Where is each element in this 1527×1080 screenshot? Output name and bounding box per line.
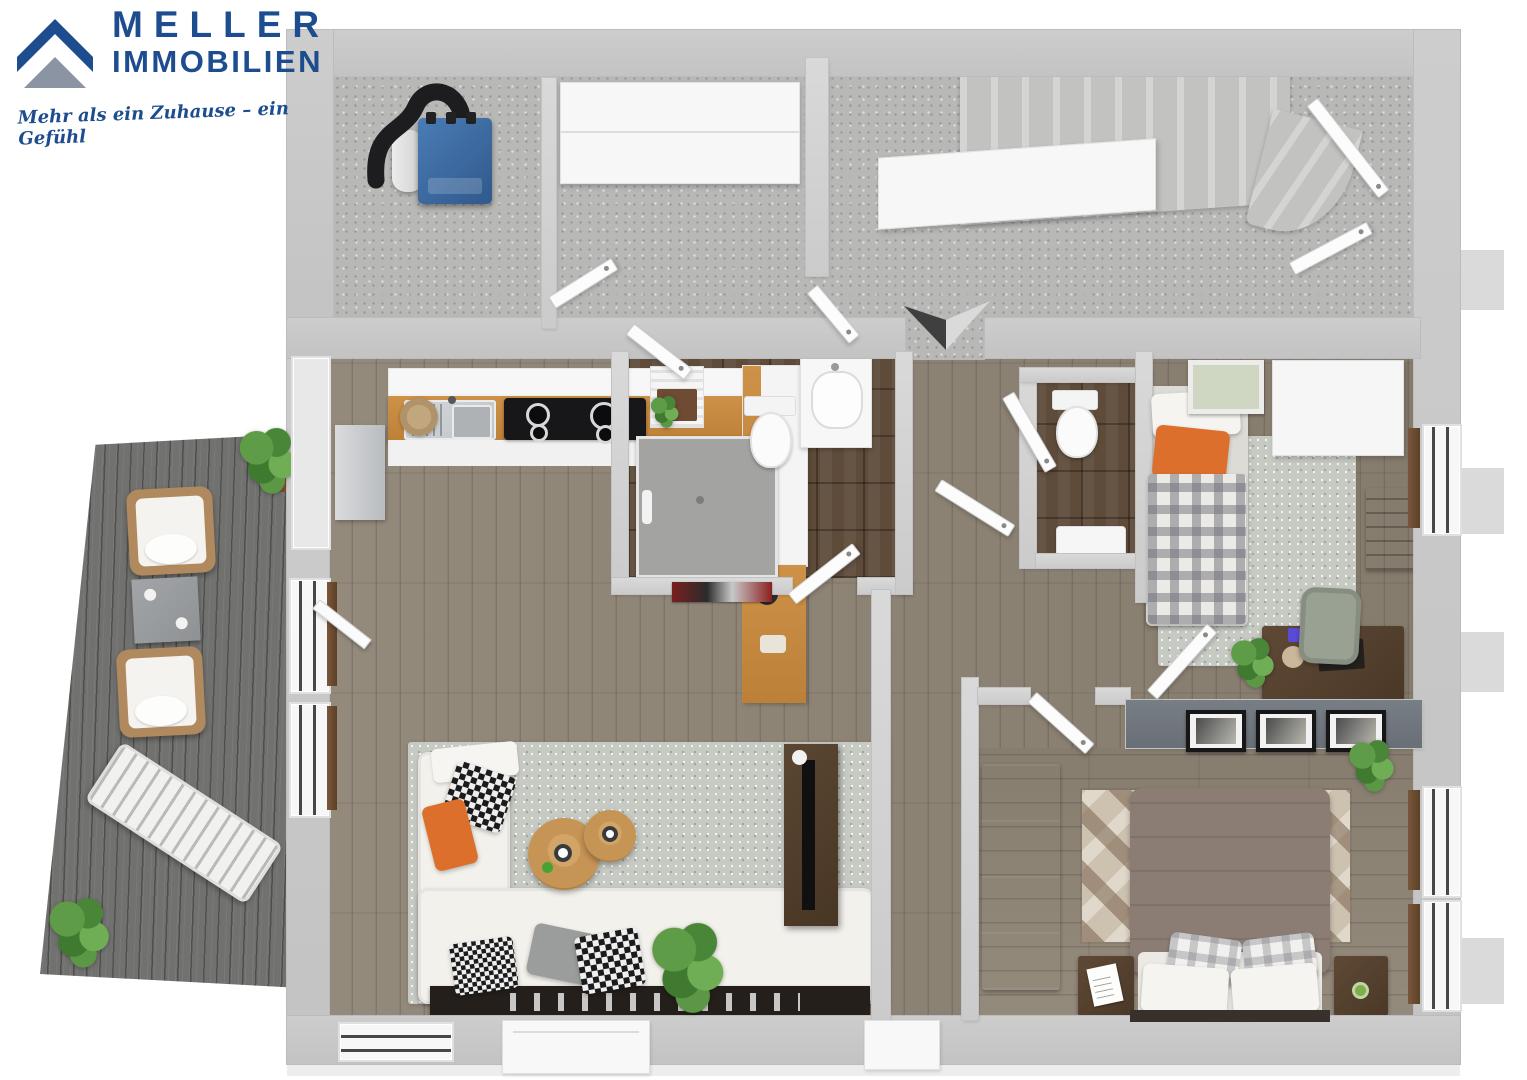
terrace-door-window [291, 356, 331, 550]
wall-bedroom-top-a [978, 688, 1030, 704]
wall-storage-landing [806, 58, 828, 276]
wall-wc-left [1020, 368, 1036, 568]
window-reveal [1458, 938, 1504, 1004]
wall-bathroom-right [896, 352, 912, 594]
bottom-door [502, 1020, 650, 1074]
window-bedroom-right [1422, 786, 1462, 898]
window-kids-right [1422, 424, 1462, 536]
storage-wardrobe [560, 82, 800, 184]
terrace-armchair [116, 646, 206, 738]
kids-wardrobe [1272, 360, 1404, 456]
tv-sideboard [430, 986, 870, 1018]
wc-toilet [1056, 406, 1098, 458]
kitchen-fridge [335, 425, 385, 520]
wall-bedroom-top-b [1096, 688, 1130, 704]
wall-bedroom-left [962, 678, 978, 1020]
bed-headboard [1130, 1010, 1330, 1022]
window-reveal [1460, 468, 1504, 534]
kids-room-plant [1230, 638, 1276, 688]
wall-main-horizontal-right [985, 318, 1420, 358]
window-living-left [289, 578, 331, 694]
window-sill [1408, 790, 1420, 890]
bedroom-plant [1348, 740, 1396, 792]
terrace-side-table [131, 576, 200, 643]
bottom-hall-door [864, 1020, 940, 1070]
kitchen-plant [650, 396, 680, 428]
nightstand-right [1334, 956, 1388, 1016]
terrace-armchair [126, 486, 216, 576]
nightstand-left [1078, 956, 1134, 1016]
company-logo: MELLER IMMOBILIEN Mehr als ein Zuhause –… [12, 6, 342, 136]
company-name-line1: MELLER [112, 6, 330, 43]
kids-room-picture [1188, 360, 1264, 414]
coffee-table-small [584, 810, 636, 862]
window-reveal [1460, 632, 1504, 692]
window-sill [1408, 428, 1420, 528]
picture-frame [1186, 710, 1246, 752]
window-sill [1408, 904, 1420, 1004]
floor-plan-render: MELLER IMMOBILIEN Mehr als ein Zuhause –… [0, 0, 1527, 1080]
window-sill [327, 582, 337, 686]
boiler [418, 118, 492, 204]
wall-bathroom-left [612, 352, 628, 592]
house-roof-chevrons-icon [12, 6, 98, 90]
round-cutting-board [400, 398, 438, 436]
checkered-pillow [449, 936, 520, 996]
compass-arrow-icon [898, 296, 994, 354]
kids-gingham-duvet [1148, 474, 1246, 624]
vanity-sink [800, 356, 872, 448]
checkered-pillow [573, 927, 646, 995]
wall-boiler-storage [542, 78, 556, 328]
terrace-plant [48, 898, 112, 968]
window-reveal [1460, 250, 1504, 310]
wall-wc-bottom [1036, 554, 1150, 568]
living-room-plant [652, 922, 726, 1014]
toilet [750, 412, 792, 468]
window-living-left [289, 702, 331, 818]
window-sill [327, 706, 337, 810]
company-name-line2: IMMOBILIEN [112, 46, 330, 77]
wall-living-hall [872, 590, 890, 1020]
bathroom-wall-picture [672, 582, 772, 602]
wall-main-horizontal-left [287, 318, 905, 358]
bed-pillow [1140, 963, 1229, 1017]
outer-wall-top [287, 30, 1458, 76]
window-bottom [338, 1022, 454, 1062]
picture-frame [1256, 710, 1316, 752]
wall-wc-top [1020, 368, 1150, 382]
desk-chair [1298, 586, 1362, 665]
window-bedroom-right [1422, 900, 1462, 1012]
bedroom-wardrobe [982, 764, 1060, 990]
tv-panel [784, 744, 838, 926]
